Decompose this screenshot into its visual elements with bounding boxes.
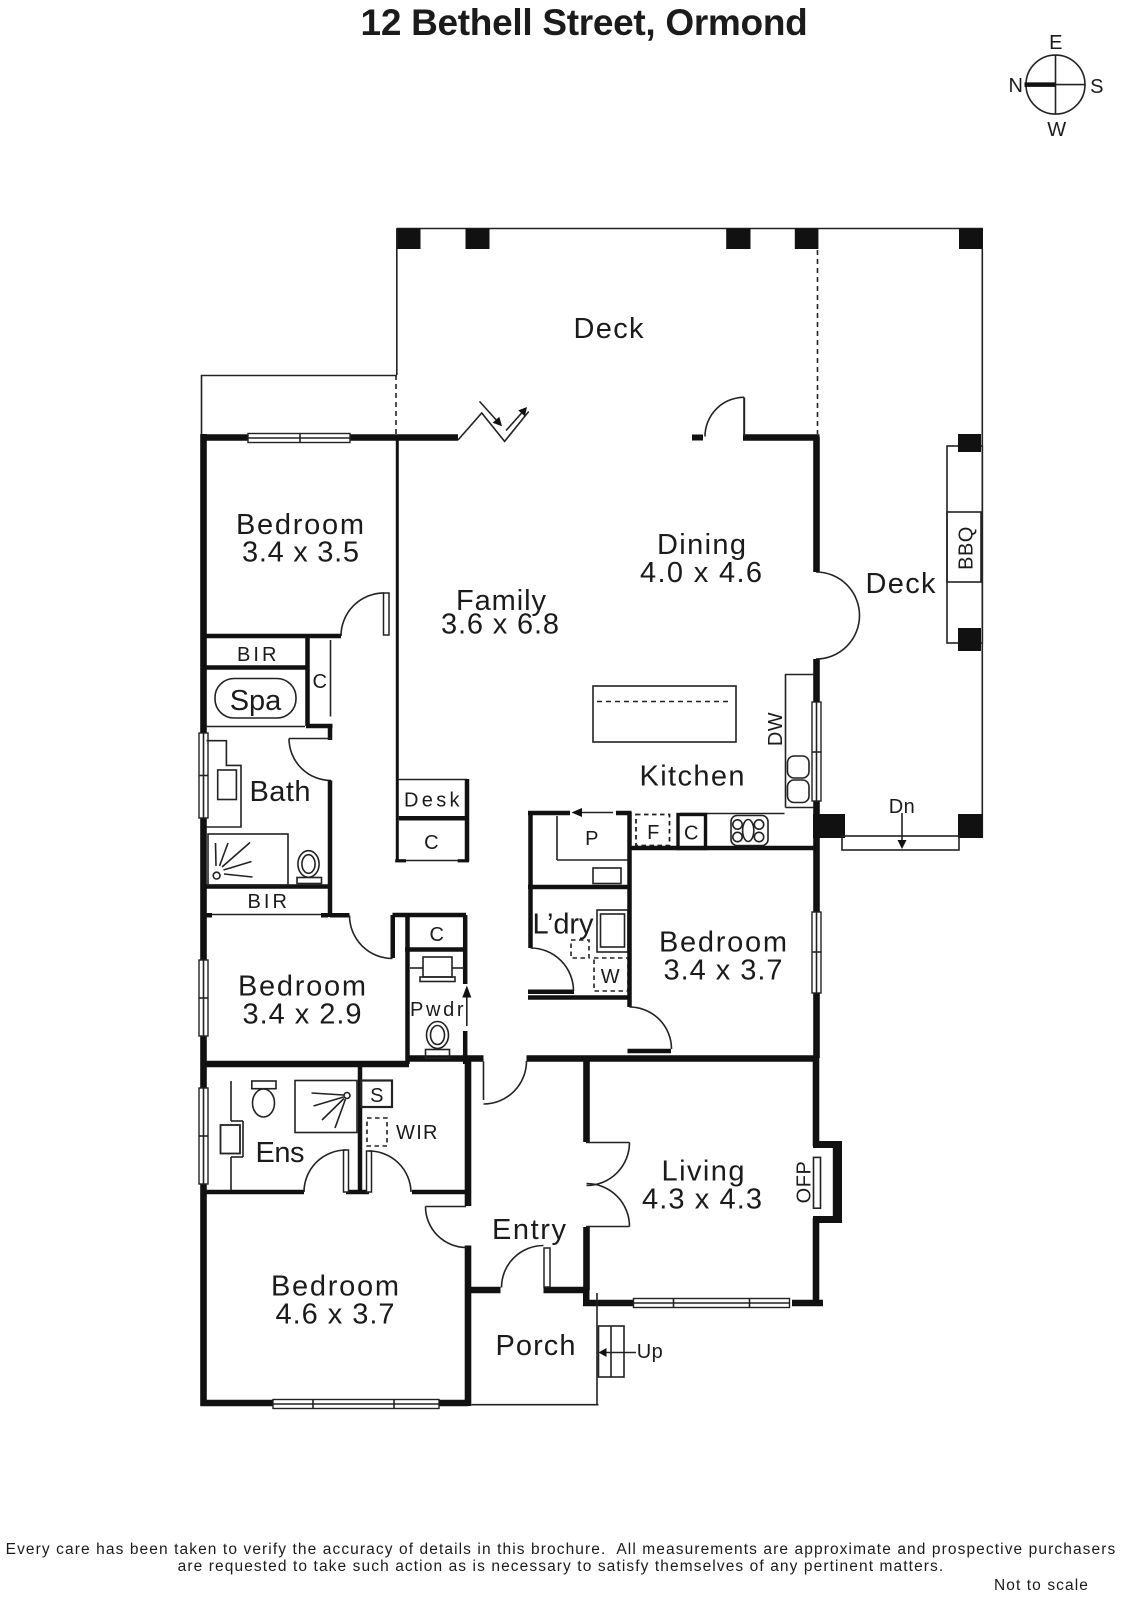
svg-text:C: C	[684, 823, 699, 845]
svg-text:E: E	[1049, 32, 1063, 54]
svg-text:4.6 x 3.7: 4.6 x 3.7	[276, 1299, 395, 1331]
svg-text:Bath: Bath	[250, 776, 311, 808]
svg-text:DW: DW	[765, 712, 787, 746]
svg-text:S: S	[370, 1085, 384, 1107]
svg-text:C: C	[313, 671, 328, 693]
svg-text:are requested to take such act: are requested to take such action as is …	[178, 1558, 945, 1575]
svg-text:OFP: OFP	[794, 1161, 816, 1204]
svg-text:BIR: BIR	[248, 891, 288, 913]
svg-text:4.0 x 4.6: 4.0 x 4.6	[640, 557, 762, 589]
svg-text:N: N	[1009, 75, 1024, 97]
svg-text:Not to scale: Not to scale	[994, 1577, 1089, 1594]
svg-text:C: C	[430, 924, 445, 946]
svg-text:3.4 x 3.5: 3.4 x 3.5	[242, 537, 359, 569]
svg-text:Up: Up	[637, 1341, 664, 1363]
svg-text:Spa: Spa	[230, 685, 282, 717]
svg-text:L’dry: L’dry	[533, 909, 595, 941]
svg-text:W: W	[601, 966, 620, 988]
svg-text:W: W	[1047, 119, 1066, 141]
svg-text:BIR: BIR	[237, 644, 277, 666]
svg-text:Pwdr: Pwdr	[410, 999, 464, 1021]
svg-text:BBQ: BBQ	[956, 526, 978, 570]
svg-text:12 Bethell Street, Ormond: 12 Bethell Street, Ormond	[361, 2, 808, 43]
svg-text:Porch: Porch	[496, 1330, 576, 1362]
svg-text:WIR: WIR	[396, 1122, 438, 1144]
svg-text:Every care has been taken to v: Every care has been taken to verify the …	[6, 1541, 1117, 1558]
svg-text:Deck: Deck	[866, 568, 937, 600]
svg-text:F: F	[647, 822, 660, 844]
svg-text:3.4 x 3.7: 3.4 x 3.7	[664, 955, 783, 987]
svg-text:4.3 x 4.3: 4.3 x 4.3	[642, 1184, 762, 1216]
svg-text:3.4 x 2.9: 3.4 x 2.9	[243, 999, 362, 1031]
svg-text:S: S	[1090, 76, 1104, 98]
svg-text:Ens: Ens	[256, 1137, 305, 1169]
svg-text:C: C	[424, 832, 439, 854]
svg-text:3.6 x 6.8: 3.6 x 6.8	[441, 609, 559, 641]
svg-text:P: P	[585, 828, 599, 850]
svg-text:Deck: Deck	[574, 313, 645, 345]
svg-text:Desk: Desk	[404, 790, 461, 812]
